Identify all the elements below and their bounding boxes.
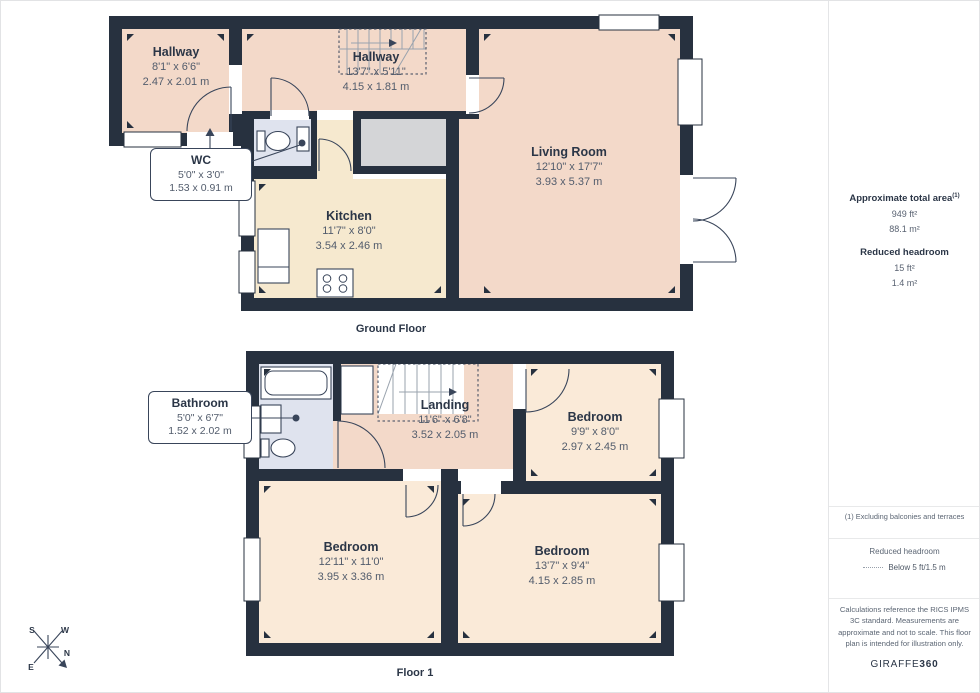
sink-icon xyxy=(261,405,281,433)
first-floor-title: Floor 1 xyxy=(397,667,434,679)
brand-name: GIRAFFE xyxy=(870,659,919,670)
footnote-marker: (1) xyxy=(952,193,959,199)
room-dims-imperial: 12'10" x 17'7" xyxy=(531,160,607,174)
room-dims-metric: 2.47 x 2.01 m xyxy=(143,75,210,89)
total-area-block: Approximate total area(1) 949 ft² 88.1 m… xyxy=(829,193,980,288)
wc-label-box: WC 5'0" x 3'0" 1.53 x 0.91 m xyxy=(150,148,252,201)
bathroom-label-box: Bathroom 5'0" x 6'7" 1.52 x 2.02 m xyxy=(148,391,252,444)
room-name: Bedroom xyxy=(529,543,596,559)
legend-row: Below 5 ft/1.5 m xyxy=(829,563,980,572)
wc-leader-dot xyxy=(299,140,306,147)
dashed-line-icon xyxy=(863,567,883,568)
room-dims-imperial: 5'0" x 6'7" xyxy=(156,412,244,426)
compass-rose-icon: S W E N xyxy=(28,625,70,672)
room-dims-metric: 4.15 x 1.81 m xyxy=(343,80,410,94)
bedroom-bottom-left-label: Bedroom 12'11" x 11'0" 3.95 x 3.36 m xyxy=(318,539,385,584)
reduced-headroom-ft: 15 ft² xyxy=(829,263,980,273)
stove-icon xyxy=(317,269,353,297)
room-dims-metric: 3.54 x 2.46 m xyxy=(316,239,383,253)
room-dims-metric: 3.93 x 5.37 m xyxy=(531,175,607,189)
total-area-heading: Approximate total area(1) xyxy=(829,193,980,204)
floorplan-card: S W E N Hallway 8'1" x 6'6" 2.47 x 2.01 … xyxy=(0,0,980,693)
total-area-ft: 949 ft² xyxy=(829,209,980,219)
reduced-headroom-legend: Reduced headroom Below 5 ft/1.5 m xyxy=(829,547,980,572)
room-name: WC xyxy=(158,153,244,169)
room-dims-metric: 3.52 x 2.05 m xyxy=(412,428,479,442)
room-name: Bedroom xyxy=(562,409,629,425)
compass-west-label: W xyxy=(61,625,70,635)
room-dims-imperial: 11'6" x 6'8" xyxy=(412,413,479,427)
reduced-headroom-heading: Reduced headroom xyxy=(829,247,980,258)
room-dims-metric: 3.95 x 3.36 m xyxy=(318,570,385,584)
compass-north-label: N xyxy=(64,648,70,658)
window xyxy=(239,251,255,293)
toilet-icon xyxy=(261,439,295,457)
room-name: Bathroom xyxy=(156,396,244,412)
cupboard-icon xyxy=(341,366,373,414)
disclaimer-text: Calculations reference the RICS IPMS 3C … xyxy=(838,604,971,650)
room-dims-imperial: 11'7" x 8'0" xyxy=(316,224,383,238)
kitchen-label: Kitchen 11'7" x 8'0" 3.54 x 2.46 m xyxy=(316,208,383,253)
room-dims-metric: 2.97 x 2.45 m xyxy=(562,440,629,454)
room-dims-metric: 1.52 x 2.02 m xyxy=(156,425,244,439)
window xyxy=(244,538,260,601)
room-dims-metric: 1.53 x 0.91 m xyxy=(158,182,244,196)
divider xyxy=(829,506,980,507)
bathtub-icon xyxy=(261,367,331,399)
info-sidebar: Approximate total area(1) 949 ft² 88.1 m… xyxy=(828,1,980,692)
toilet-icon xyxy=(257,131,290,151)
room-name: Landing xyxy=(412,397,479,413)
window xyxy=(678,59,702,125)
corridor-area xyxy=(317,119,353,179)
room-name: Living Room xyxy=(531,144,607,160)
window xyxy=(659,399,684,458)
living-room-label: Living Room 12'10" x 17'7" 3.93 x 5.37 m xyxy=(531,144,607,189)
room-dims-metric: 4.15 x 2.85 m xyxy=(529,574,596,588)
legend-label: Below 5 ft/1.5 m xyxy=(888,563,945,572)
room-dims-imperial: 12'11" x 11'0" xyxy=(318,555,385,569)
total-area-heading-text: Approximate total area xyxy=(849,193,952,204)
room-name: Hallway xyxy=(343,49,410,65)
room-dims-imperial: 9'9" x 8'0" xyxy=(562,425,629,439)
landing-label: Landing 11'6" x 6'8" 3.52 x 2.05 m xyxy=(412,397,479,442)
area-footnote: (1) Excluding balconies and terraces xyxy=(831,512,978,521)
compass-east-label: E xyxy=(28,662,34,672)
room-name: Kitchen xyxy=(316,208,383,224)
bedroom-bottom-right-label: Bedroom 13'7" x 9'4" 4.15 x 2.85 m xyxy=(529,543,596,588)
window xyxy=(659,544,684,601)
hallway-main-label: Hallway 13'7" x 5'11" 4.15 x 1.81 m xyxy=(343,49,410,94)
room-dims-imperial: 13'7" x 5'11" xyxy=(343,65,410,79)
room-dims-imperial: 5'0" x 3'0" xyxy=(158,169,244,183)
bathroom-leader-dot xyxy=(293,415,300,422)
room-dims-imperial: 13'7" x 9'4" xyxy=(529,559,596,573)
storage-area xyxy=(361,119,446,166)
divider xyxy=(829,598,980,599)
room-dims-imperial: 8'1" x 6'6" xyxy=(143,60,210,74)
window xyxy=(124,132,181,147)
kitchen-counter-icon xyxy=(258,229,289,283)
divider xyxy=(829,538,980,539)
legend-heading: Reduced headroom xyxy=(829,547,980,556)
sink-icon xyxy=(297,127,309,151)
reduced-headroom-m: 1.4 m² xyxy=(829,278,980,288)
ground-floor-title: Ground Floor xyxy=(356,323,426,335)
hallway-front-label: Hallway 8'1" x 6'6" 2.47 x 2.01 m xyxy=(143,44,210,89)
window xyxy=(599,15,659,30)
compass-south-label: S xyxy=(29,625,35,635)
room-name: Bedroom xyxy=(318,539,385,555)
room-name: Hallway xyxy=(143,44,210,60)
brand-suffix: 360 xyxy=(919,659,938,670)
total-area-m: 88.1 m² xyxy=(829,224,980,234)
brand-logo: GIRAFFE360 xyxy=(829,659,980,670)
bedroom-top-right-label: Bedroom 9'9" x 8'0" 2.97 x 2.45 m xyxy=(562,409,629,454)
